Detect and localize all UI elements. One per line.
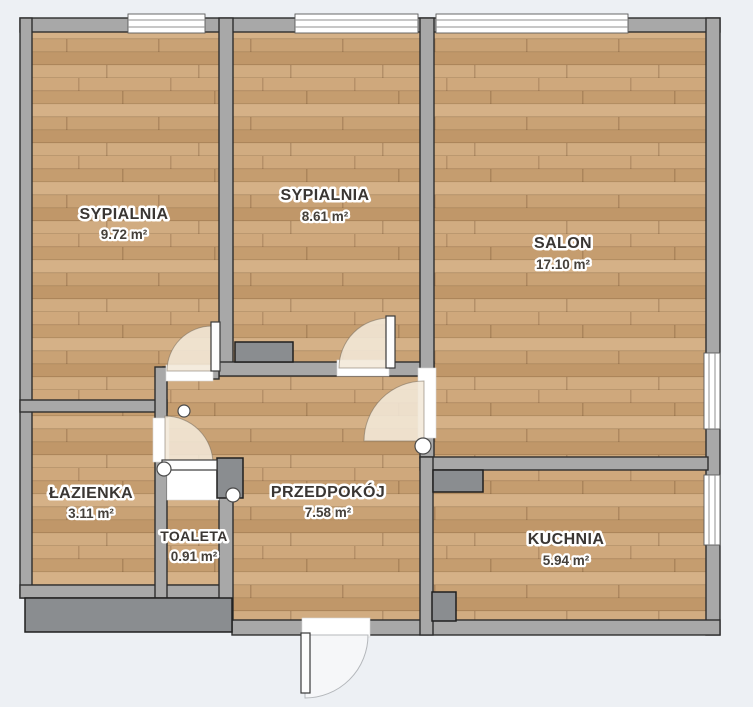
door-hinge-salon: [415, 438, 431, 454]
room-name: PRZEDPOKÓJ: [271, 482, 385, 501]
door-leaf: [301, 633, 310, 693]
window-bedroom2: [295, 14, 418, 33]
wall-bedrooms-divider: [219, 18, 233, 372]
door-leaf: [386, 316, 395, 368]
room-area: 8.61 m²: [302, 209, 349, 224]
wall-bedroom1-bathroom-divider: [20, 400, 167, 412]
floor-plan-page: SYPIALNIA 9.72 m² SYPIALNIA 8.61 m² SALO…: [0, 0, 753, 707]
door-hinge-toilet: [226, 488, 240, 502]
room-area: 7.58 m²: [305, 505, 352, 520]
room-name: TOALETA: [160, 528, 228, 544]
furniture-bedroom2-wardrobe: [235, 342, 293, 362]
wall-salon-kitchen-divider: [420, 457, 708, 470]
door-hinge-hall: [178, 405, 190, 417]
window-salon-top: [436, 14, 628, 33]
door-leaf: [211, 322, 220, 371]
room-area: 0.91 m²: [171, 549, 218, 564]
room-area: 17.10 m²: [536, 257, 591, 272]
room-name: SYPIALNIA: [80, 206, 169, 223]
door-hinge-bathroom: [157, 462, 171, 476]
room-name: SALON: [534, 235, 592, 252]
room-area: 5.94 m²: [543, 553, 590, 568]
floor-plan: SYPIALNIA 9.72 m² SYPIALNIA 8.61 m² SALO…: [0, 0, 753, 707]
window-bedroom1: [128, 14, 205, 33]
wall-left: [20, 18, 32, 598]
wall-hall-kitchen-divider: [420, 457, 433, 635]
door-opening-entrance: [302, 618, 370, 637]
wall-bathroom-right: [155, 367, 167, 598]
window-kitchen-right: [704, 475, 720, 545]
room-area: 3.11 m²: [68, 506, 114, 521]
window-salon-right: [704, 353, 720, 429]
room-name: ŁAZIENKA: [49, 485, 133, 502]
wall-bathroom-bottom: [20, 585, 232, 598]
door-entrance: [301, 633, 368, 698]
room-name: KUCHNIA: [528, 531, 605, 548]
room-name: SYPIALNIA: [281, 187, 370, 204]
room-area: 9.72 m²: [101, 227, 148, 242]
furniture-kitchen-counter-bottom: [432, 592, 456, 621]
wall-bedroom2-bottom: [219, 362, 434, 376]
furniture-kitchen-counter-top: [433, 470, 483, 492]
doorway-toilet: [167, 470, 219, 500]
door-swing-arc: [305, 635, 368, 698]
utility-strip-bottom-left: [25, 598, 232, 632]
